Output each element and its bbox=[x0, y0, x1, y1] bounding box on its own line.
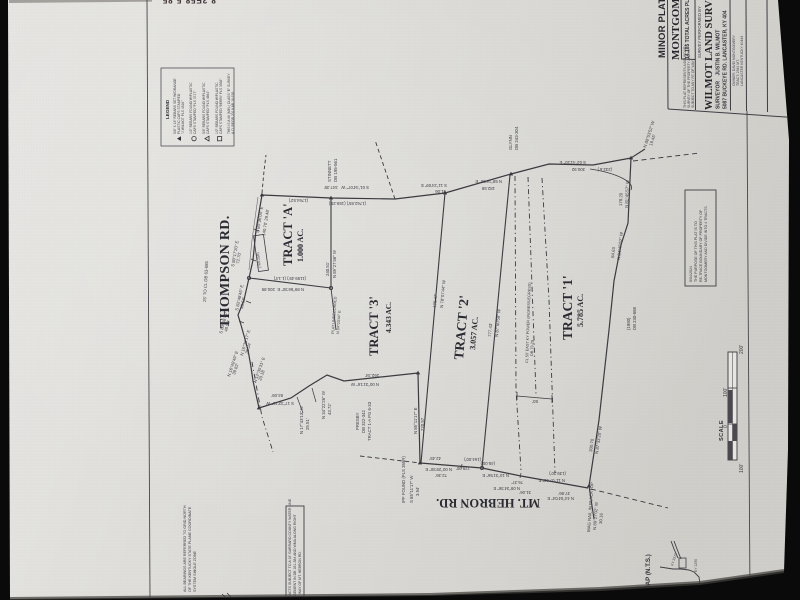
svg-text:TRACT 1-A PG 6-33: TRACT 1-A PG 6-33 bbox=[367, 401, 372, 441]
svg-text:DB 230-668: DB 230-668 bbox=[632, 306, 637, 330]
svg-text:N 09°34'36" E: N 09°34'36" E bbox=[493, 486, 520, 491]
svg-text:SURVEY PERFORMED BY: SURVEY PERFORMED BY bbox=[697, 6, 702, 58]
svg-text:43.72': 43.72' bbox=[327, 403, 332, 415]
svg-text:OF WAY OF MT. HEBRON RD.: OF WAY OF MT. HEBRON RD. bbox=[298, 551, 302, 600]
svg-text:(1199.45') (1.14'): (1199.45') (1.14') bbox=[273, 276, 306, 281]
svg-text:91.06: 91.06 bbox=[435, 189, 446, 194]
svg-text:N 00°29'30" E: N 00°29'30" E bbox=[425, 467, 452, 472]
svg-text:SURVEYOR JUSTIN B. WILMOT: SURVEYOR JUSTIN B. WILMOT bbox=[716, 30, 722, 109]
svg-text:A.O. REGR 201 KAR 18:150: A.O. REGR 201 KAR 18:150 bbox=[231, 92, 235, 134]
svg-text:MINOR PLAT: MINOR PLAT bbox=[657, 0, 668, 58]
svg-text:(1762.85') (159.29'): (1762.85') (159.29') bbox=[328, 201, 366, 206]
svg-text:EASEMENT IN DB 181-384 AND WMA: EASEMENT IN DB 181-384 AND WMA ALONG RIG… bbox=[293, 513, 297, 600]
svg-text:178.20: 178.20 bbox=[618, 192, 623, 206]
svg-text:TRACT '3': TRACT '3' bbox=[367, 296, 381, 356]
svg-text:CAPS STAMPED "PLS 3717": CAPS STAMPED "PLS 3717" bbox=[193, 90, 197, 134]
svg-text:DB 195-561: DB 195-561 bbox=[333, 158, 338, 182]
svg-text:LEGEND: LEGEND bbox=[165, 99, 170, 119]
svg-text:(45.00'): (45.00') bbox=[480, 461, 495, 466]
svg-text:25.51': 25.51' bbox=[305, 418, 310, 430]
svg-text:76.37': 76.37' bbox=[511, 480, 523, 485]
svg-text:OF THE KENTUCKY STATE PLANE CO: OF THE KENTUCKY STATE PLANE COORDINATE bbox=[188, 506, 192, 592]
svg-text:TRACTS SUBJECT TO A 16' GARRAR: TRACTS SUBJECT TO A 16' GARRARD COUNTY W… bbox=[288, 498, 292, 600]
svg-text:SCALE: SCALE bbox=[719, 420, 725, 441]
svg-text:S 02°41'20" E: S 02°41'20" E bbox=[559, 160, 586, 165]
svg-text:50': 50' bbox=[532, 399, 538, 404]
svg-text:N 10°31'56" E: N 10°31'56" E bbox=[482, 473, 509, 478]
svg-text:4.343 AC.: 4.343 AC. bbox=[384, 302, 393, 333]
svg-text:S 17°32'10" W: S 17°32'10" W bbox=[265, 401, 294, 406]
svg-text:S 85°11'17" W: S 85°11'17" W bbox=[409, 475, 414, 503]
svg-text:37.86': 37.86' bbox=[558, 491, 570, 496]
svg-text:N 58°16'08" E: N 58°16'08" E bbox=[475, 179, 502, 184]
svg-text:LANCASTER KENTUCKY 40444: LANCASTER KENTUCKY 40444 bbox=[740, 36, 744, 86]
svg-text:CAPS STAMPED "BERRY PLS 3558": CAPS STAMPED "BERRY PLS 3558" bbox=[219, 78, 223, 134]
svg-text:72.36': 72.36' bbox=[435, 473, 447, 478]
svg-text:GLYNN: GLYNN bbox=[508, 135, 513, 150]
svg-text:TRACT '1': TRACT '1' bbox=[560, 275, 575, 340]
svg-text:N 11°07'43" E: N 11°07'43" E bbox=[538, 478, 565, 483]
svg-text:N 89°27'46" W: N 89°27'46" W bbox=[332, 249, 337, 278]
svg-text:N 89°56'30" E 200.89: N 89°56'30" E 200.89 bbox=[261, 287, 304, 292]
svg-text:300.92: 300.92 bbox=[571, 167, 585, 172]
svg-text:(139.20'): (139.20') bbox=[549, 471, 566, 476]
svg-text:THE PURPOSE OF THIS PLAT IS TO: THE PURPOSE OF THIS PLAT IS TO bbox=[694, 221, 698, 282]
svg-text:0: 0 bbox=[723, 425, 729, 428]
svg-text:CAPS STAMPED "PLS 4664": CAPS STAMPED "PLS 4664" bbox=[206, 90, 210, 134]
svg-text:1.000 AC.: 1.000 AC. bbox=[296, 229, 305, 262]
svg-text:240.51': 240.51' bbox=[325, 262, 330, 276]
svg-text:42.45': 42.45' bbox=[429, 456, 441, 461]
svg-text:31.06': 31.06' bbox=[519, 490, 531, 495]
svg-text:N 85°11'17" E: N 85°11'17" E bbox=[413, 407, 418, 434]
svg-text:262.34': 262.34' bbox=[365, 373, 379, 378]
svg-text:MT. HEBRON RD.: MT. HEBRON RD. bbox=[436, 496, 540, 510]
svg-text:DB 73-29: DB 73-29 bbox=[530, 340, 535, 356]
svg-text:KY 1295: KY 1295 bbox=[694, 559, 698, 572]
svg-text:"J WILMOT PLS 4516": "J WILMOT PLS 4516" bbox=[181, 100, 185, 134]
svg-text:SYSTEM SINGLE ZONE: SYSTEM SINGLE ZONE bbox=[193, 550, 197, 592]
svg-text:ALL BEARINGS ARE REFERRED TO G: ALL BEARINGS ARE REFERRED TO GRID NORTH bbox=[183, 505, 187, 592]
svg-text:MONTGOMERY AND DIVIDE INTO 4 T: MONTGOMERY AND DIVIDE INTO 4 TRACTS bbox=[704, 206, 708, 282]
svg-text:8/04/2024: 8/04/2024 bbox=[689, 266, 693, 282]
svg-text:TRACT 'A': TRACT 'A' bbox=[281, 203, 295, 266]
svg-text:SUBJECT TO ANY RT OF WAY: SUBJECT TO ANY RT OF WAY bbox=[691, 59, 695, 108]
svg-text:(232.6'): (232.6') bbox=[597, 167, 612, 172]
svg-text:5087 BUCKEYE RD. LANCASTER, KY: 5087 BUCKEYE RD. LANCASTER, KY 404 bbox=[723, 10, 729, 109]
svg-text:5.785 AC.: 5.785 AC. bbox=[576, 294, 585, 327]
svg-text:30.16: 30.16 bbox=[598, 512, 604, 524]
svg-text:N 44°04'04" E: N 44°04'04" E bbox=[547, 496, 574, 501]
svg-text:S 01°44'07" W 347.35': S 01°44'07" W 347.35' bbox=[324, 185, 369, 190]
svg-text:182.59: 182.59 bbox=[481, 186, 495, 191]
svg-text:(1890): (1890) bbox=[626, 317, 631, 330]
svg-text:PRESBY: PRESBY bbox=[355, 412, 360, 430]
svg-text:MONTGOMERY: MONTGOMERY bbox=[670, 0, 682, 60]
svg-text:100': 100' bbox=[739, 464, 745, 473]
svg-text:IPF FOUND (PLS 355R): IPF FOUND (PLS 355R) bbox=[401, 456, 406, 503]
svg-text:8-3E58-5-85: 8-3E58-5-85 bbox=[162, 0, 216, 5]
svg-text:3.94': 3.94' bbox=[415, 487, 420, 496]
svg-text:STINNETT: STINNETT bbox=[327, 160, 332, 182]
svg-text:N 00°31'16" W: N 00°31'16" W bbox=[350, 382, 379, 387]
svg-text:200': 200' bbox=[739, 345, 745, 354]
svg-text:RE-TRACE BOUNDARY OF PROPERTY: RE-TRACE BOUNDARY OF PROPERTY OF bbox=[699, 209, 703, 282]
svg-text:N 81°45'57" W: N 81°45'57" W bbox=[624, 179, 630, 208]
svg-text:(1764.52'): (1764.52') bbox=[288, 198, 308, 203]
svg-text:N 34°22'26" W: N 34°22'26" W bbox=[321, 390, 326, 419]
svg-text:DB 322-342: DB 322-342 bbox=[361, 409, 366, 433]
svg-text:(164.00'): (164.00') bbox=[464, 457, 481, 462]
svg-text:100': 100' bbox=[723, 388, 729, 397]
svg-text:DB 243-304: DB 243-304 bbox=[514, 126, 519, 150]
svg-text:WILMOT LAND SURVEYING: WILMOT LAND SURVEYING bbox=[704, 0, 715, 110]
svg-text:84.09': 84.09' bbox=[271, 393, 283, 398]
svg-text:129.00': 129.00' bbox=[456, 466, 470, 471]
svg-text:S 11°24'09" E: S 11°24'09" E bbox=[421, 183, 447, 188]
